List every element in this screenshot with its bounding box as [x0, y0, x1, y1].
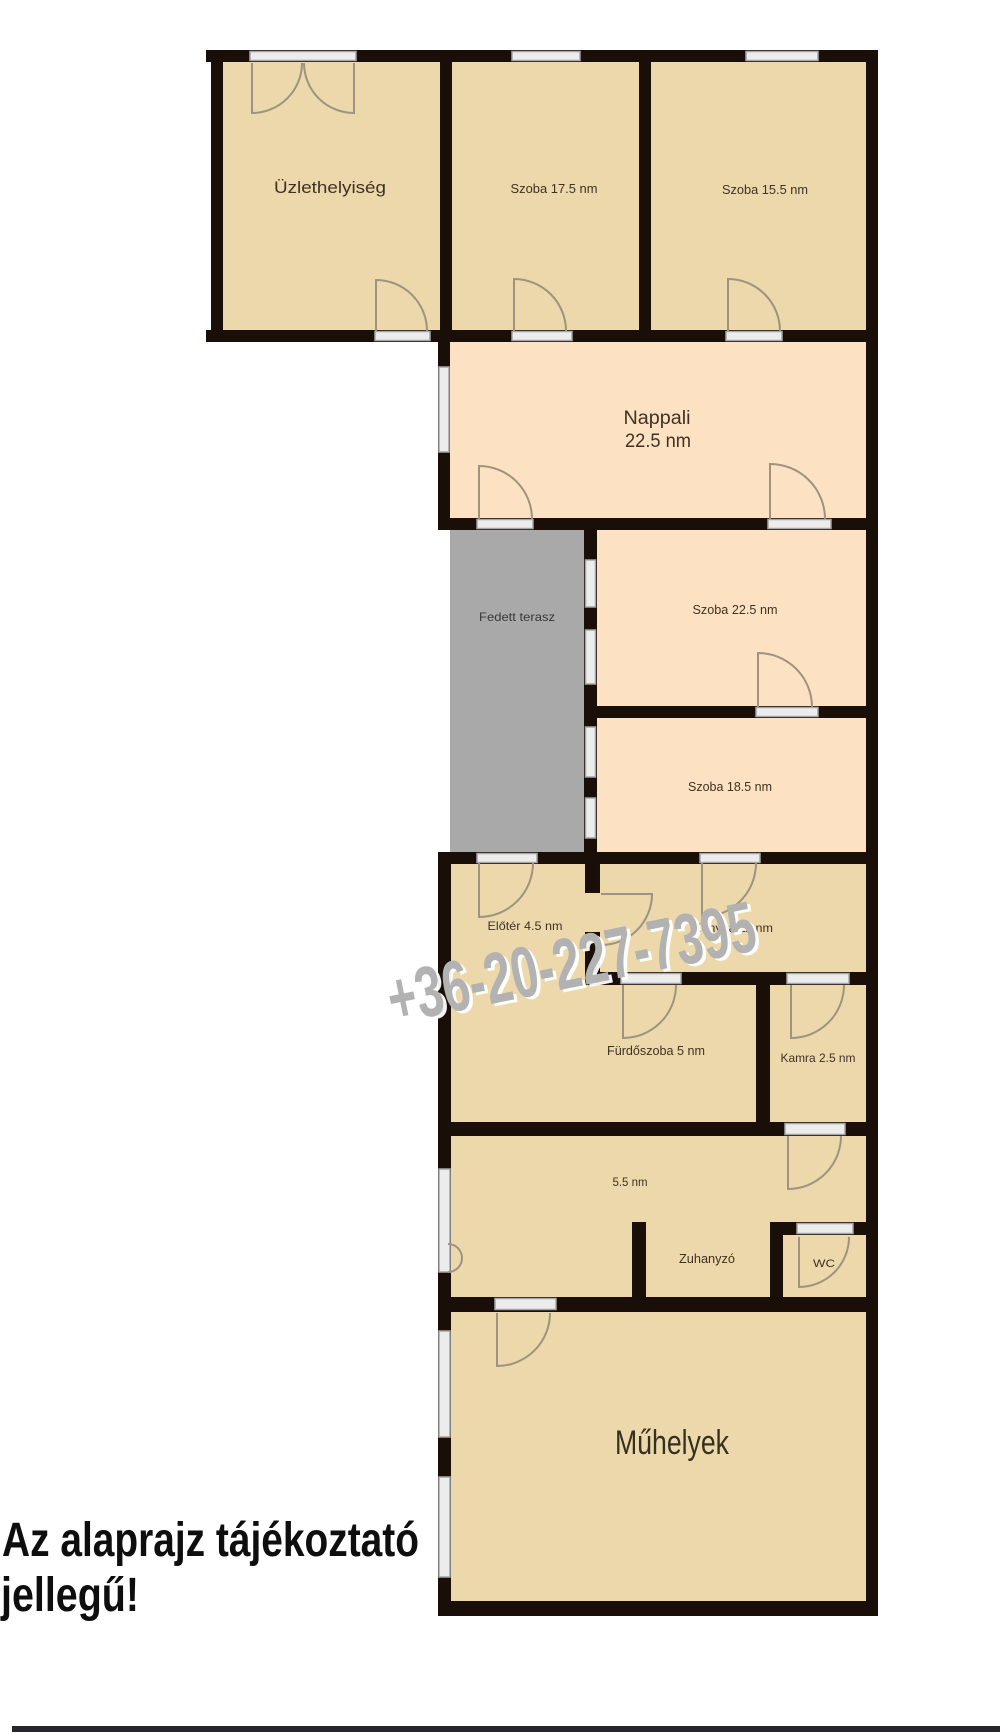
svg-text:Szoba 18.5 nm: Szoba 18.5 nm	[688, 779, 772, 794]
svg-text:Szoba 17.5 nm: Szoba 17.5 nm	[511, 181, 598, 196]
svg-text:Fedett terasz: Fedett terasz	[479, 610, 555, 624]
svg-text:Szoba 22.5 nm: Szoba 22.5 nm	[693, 602, 778, 617]
svg-text:Nappali: Nappali	[624, 408, 691, 429]
svg-text:Műhelyek: Műhelyek	[615, 1424, 730, 1462]
svg-text:Zuhanyzó: Zuhanyzó	[679, 1252, 735, 1266]
svg-text:Kamra 2.5 nm: Kamra 2.5 nm	[781, 1051, 856, 1065]
svg-text:Az alaprajz tájékoztató: Az alaprajz tájékoztató	[2, 1514, 419, 1567]
svg-text:22.5 nm: 22.5 nm	[625, 431, 691, 452]
svg-text:Üzlethelyiség: Üzlethelyiség	[274, 178, 386, 197]
svg-text:WC: WC	[813, 1258, 835, 1270]
svg-text:jellegű!: jellegű!	[0, 1569, 139, 1622]
svg-text:5.5 nm: 5.5 nm	[613, 1175, 648, 1189]
svg-text:Fürdőszoba 5 nm: Fürdőszoba 5 nm	[607, 1043, 705, 1058]
svg-text:Szoba 15.5 nm: Szoba 15.5 nm	[722, 182, 808, 197]
